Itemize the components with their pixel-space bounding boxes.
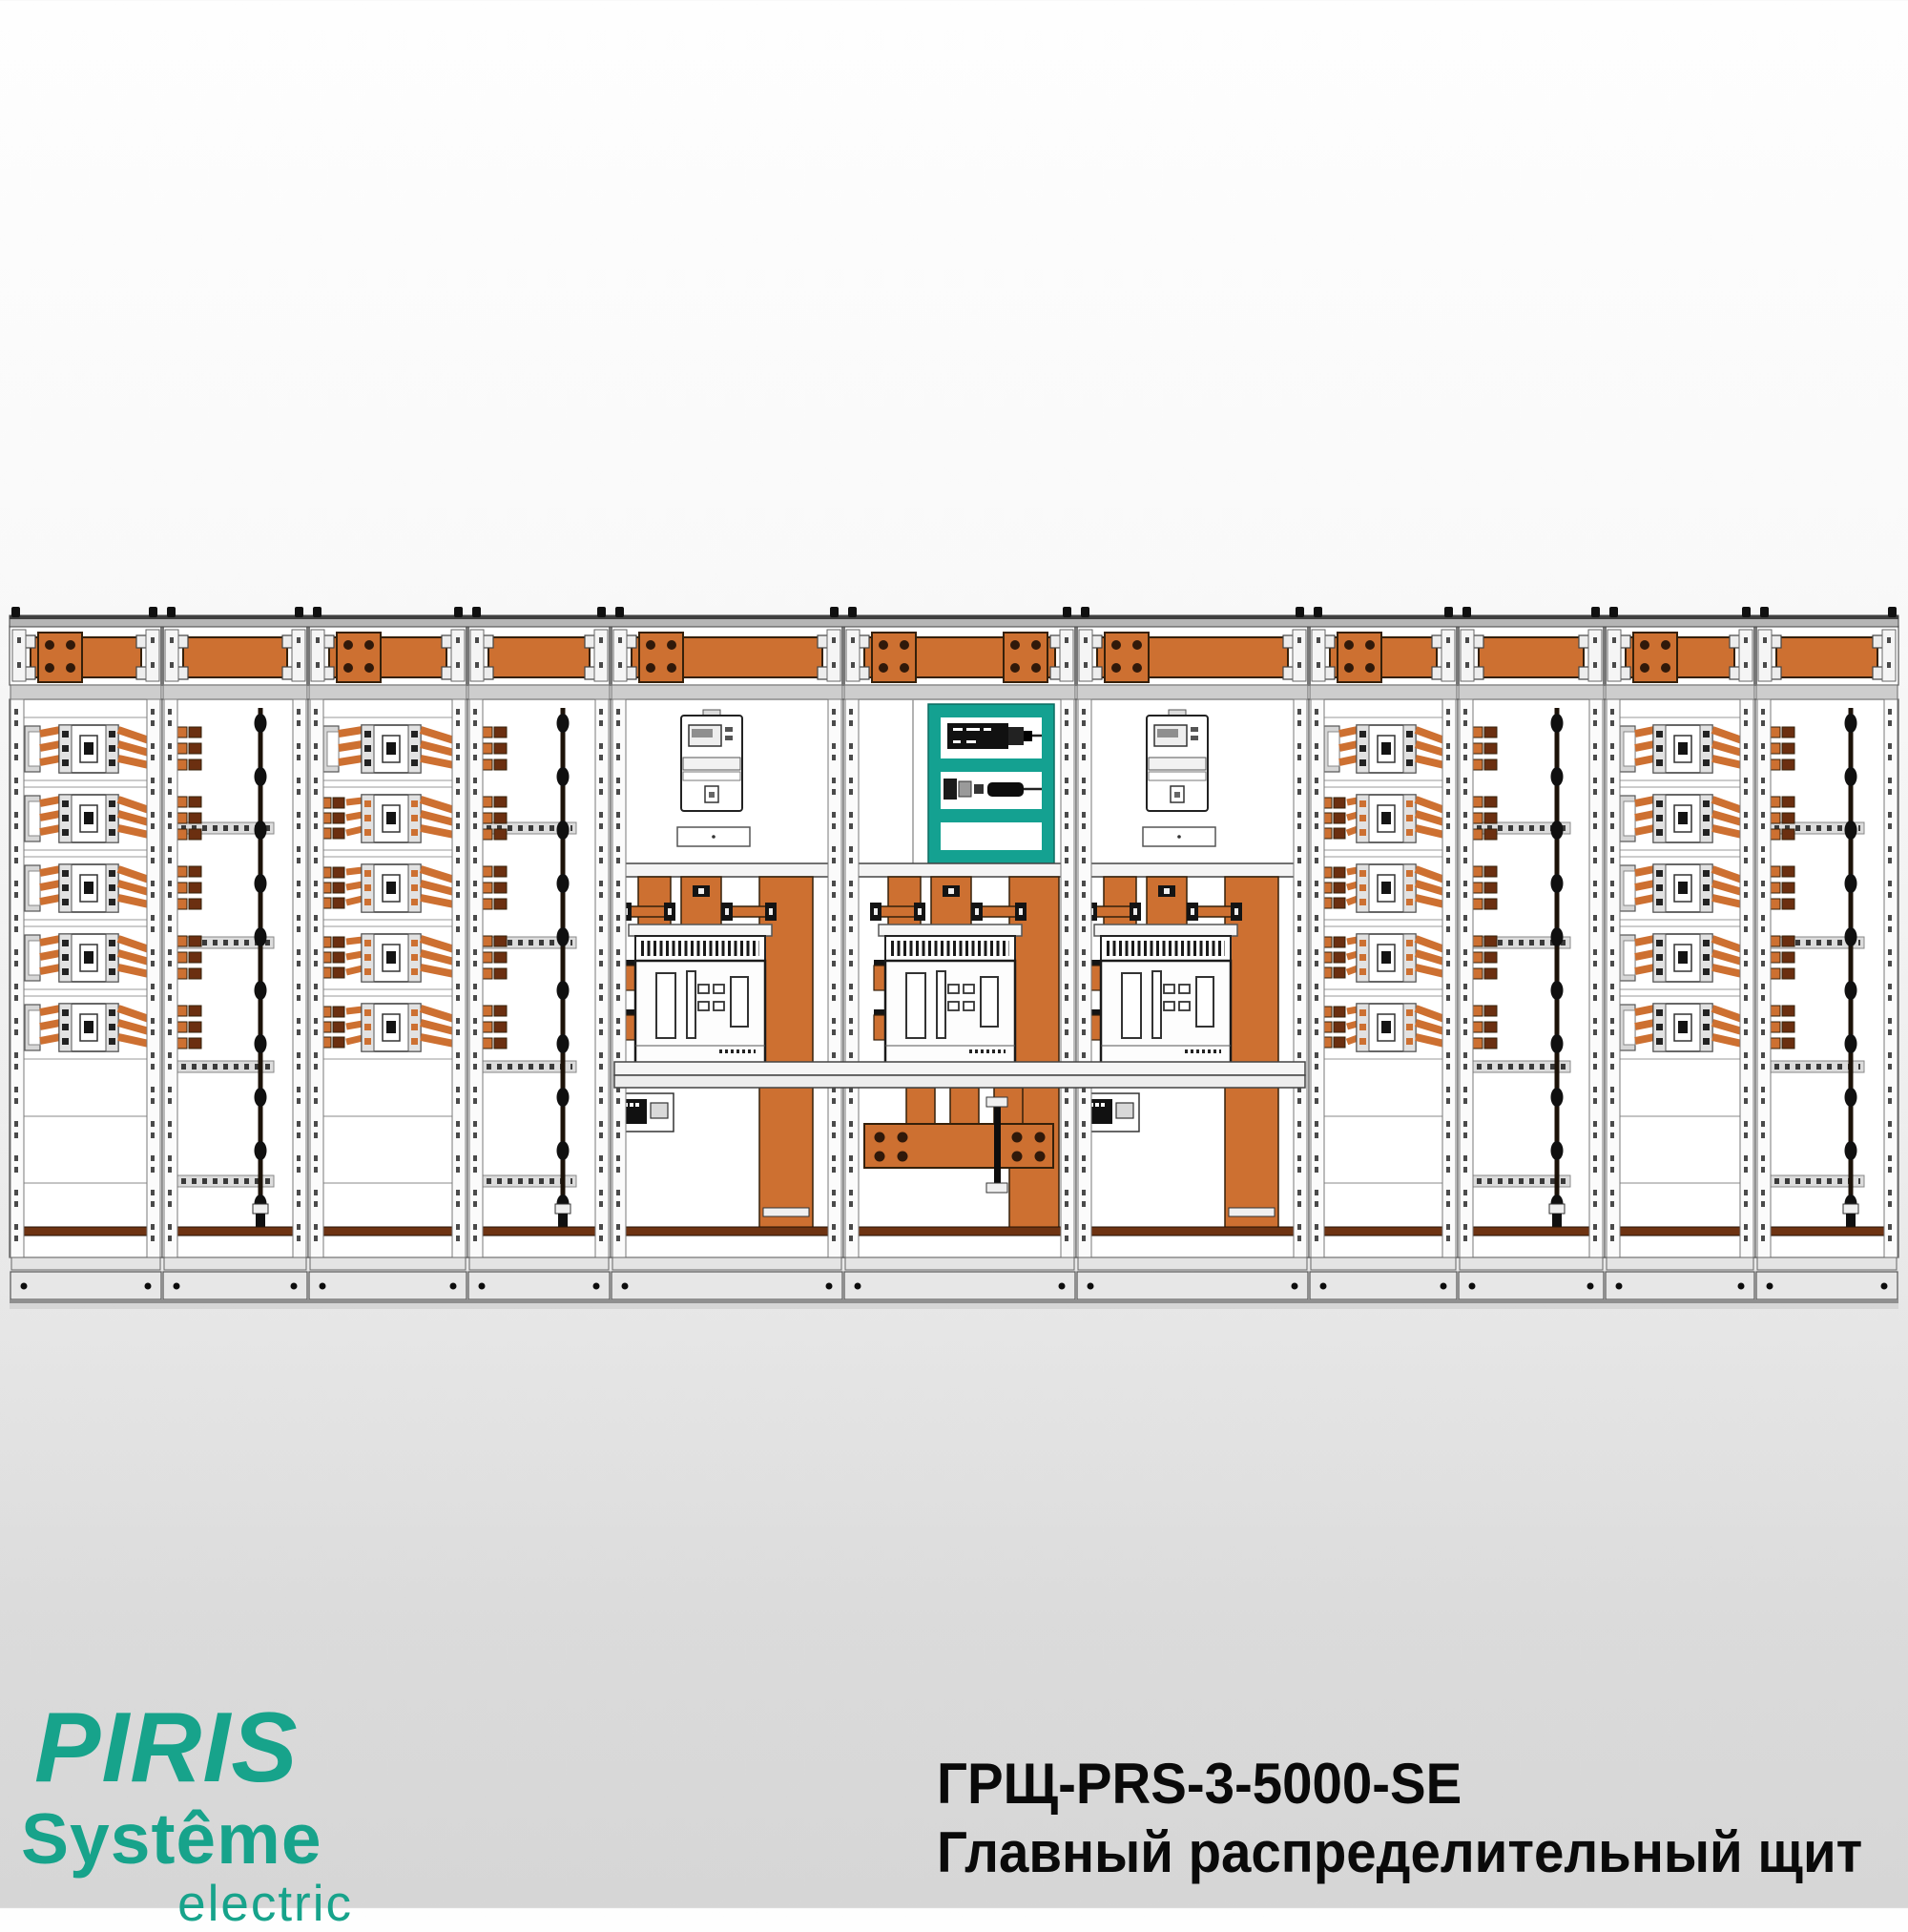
product-title-block: ГРЩ-PRS-3-5000-SE Главный распределитель… [937,1750,1862,1887]
switchboard-svg [0,0,1908,1908]
base-plinth [10,1257,1898,1309]
page: { "page": { "background_top": "#fefefe",… [0,0,1908,1908]
brand-logo-systeme: Systême [21,1803,357,1875]
acb-support-beam [614,1062,1305,1088]
brand-logo: PIRIS Systême electric [21,1700,357,1929]
brand-logo-electric: electric [21,1879,353,1929]
product-model-code: ГРЩ-PRS-3-5000-SE [937,1750,1862,1818]
brand-logo-piris: PIRIS [34,1700,357,1797]
switchboard-drawing [0,0,1908,1908]
product-name: Главный распределительный щит [937,1818,1862,1887]
